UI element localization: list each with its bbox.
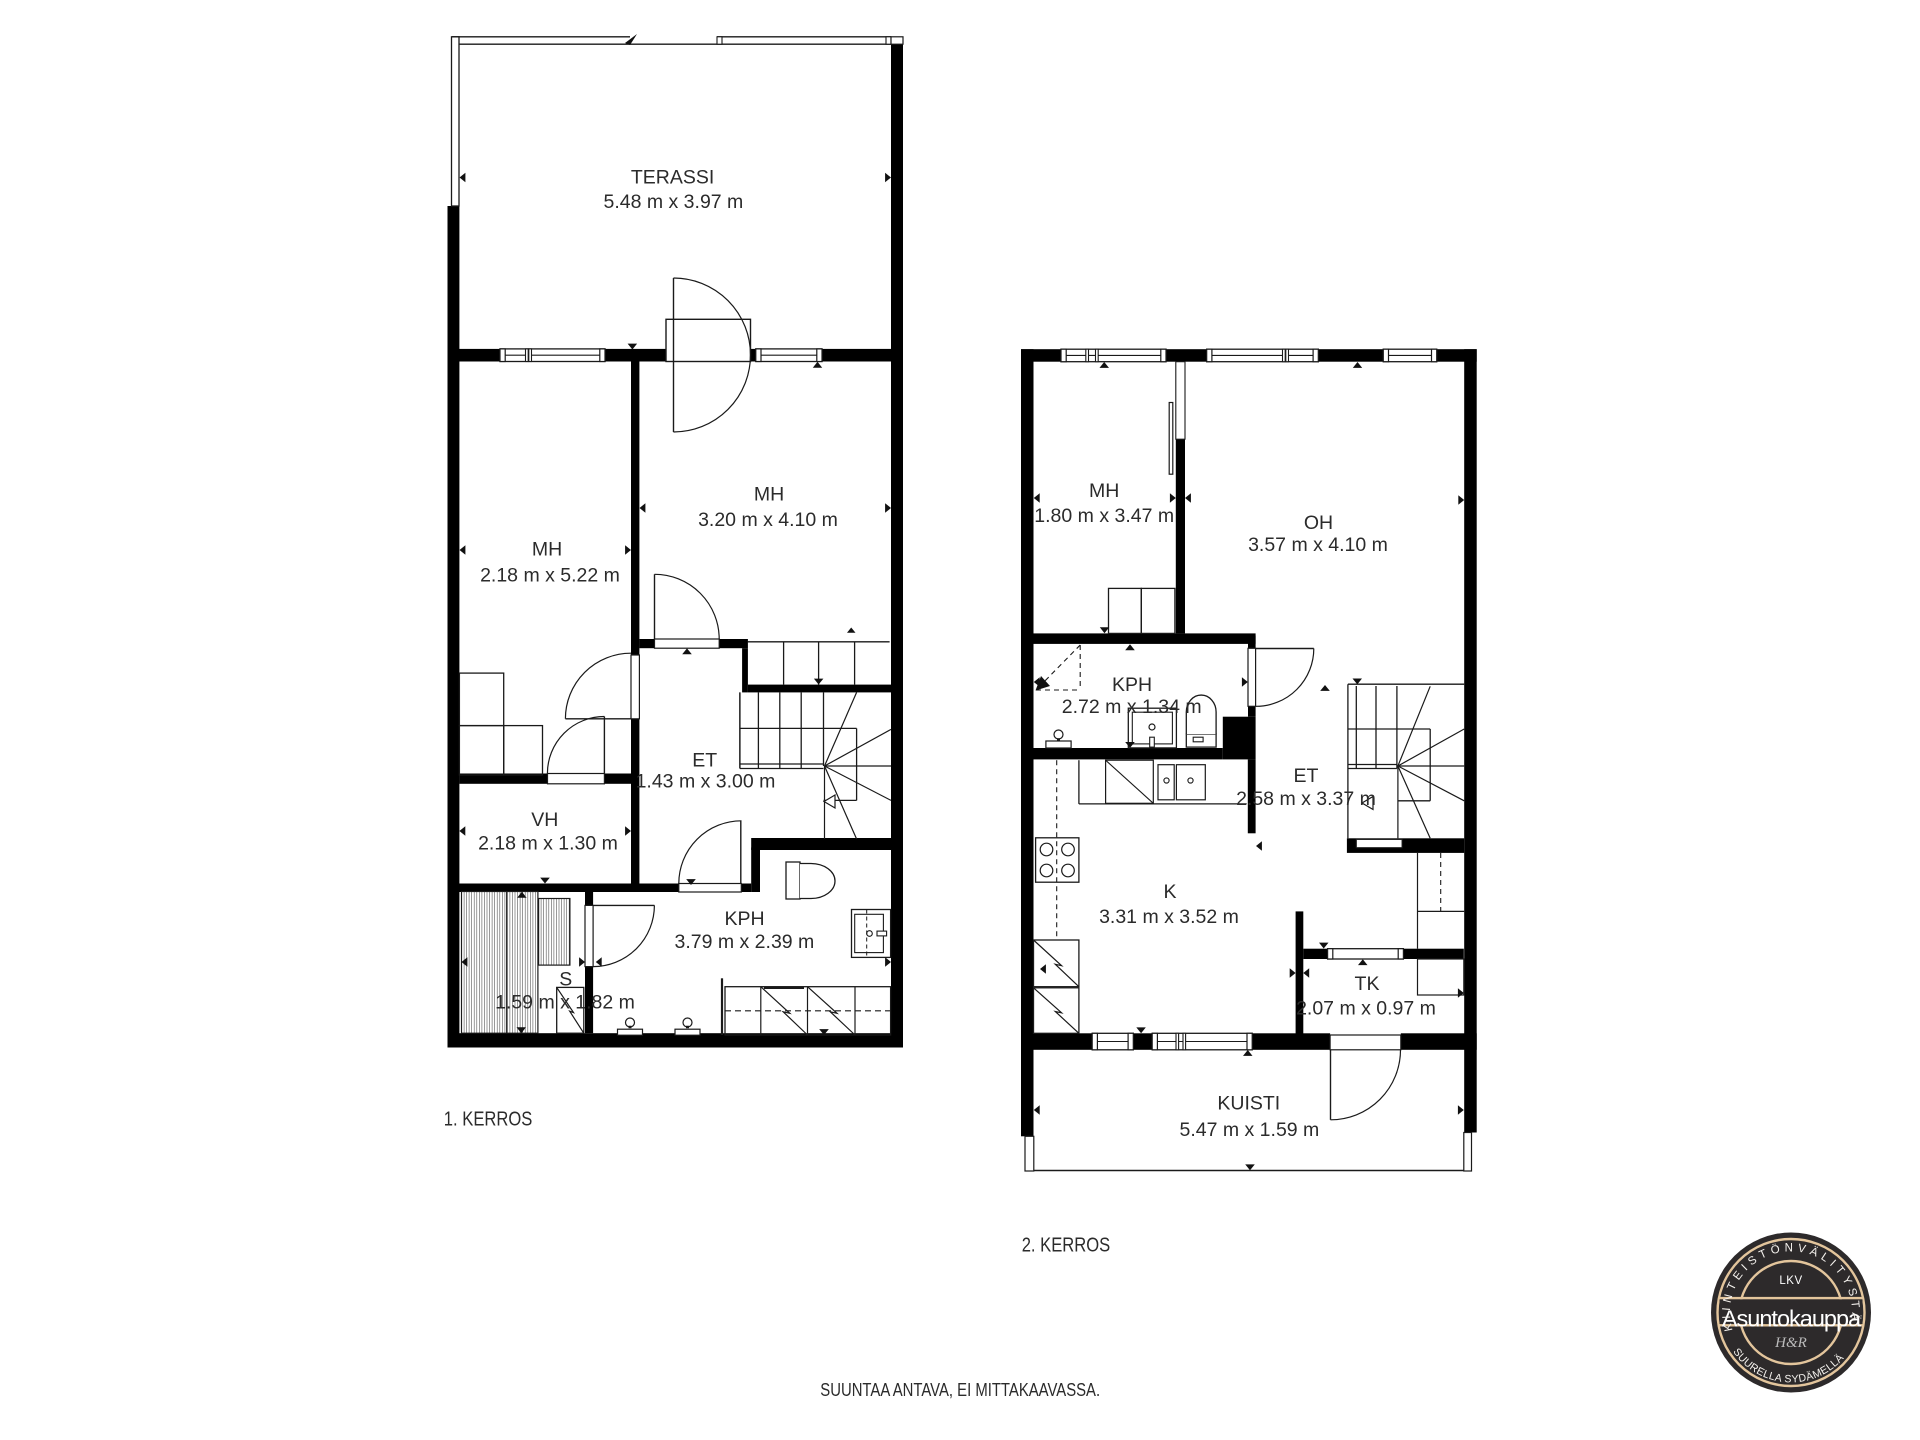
svg-text:2. KERROS: 2. KERROS bbox=[1022, 1233, 1111, 1256]
svg-text:5.48 m x 3.97 m: 5.48 m x 3.97 m bbox=[603, 191, 743, 213]
svg-text:TK: TK bbox=[1355, 973, 1380, 995]
svg-text:MH: MH bbox=[1089, 480, 1119, 502]
svg-text:SUUNTAA ANTAVA, EI MITTAKAAVAS: SUUNTAA ANTAVA, EI MITTAKAAVASSA. bbox=[820, 1379, 1100, 1400]
svg-text:OH: OH bbox=[1304, 512, 1333, 534]
svg-text:MH: MH bbox=[754, 484, 784, 506]
svg-text:ET: ET bbox=[1294, 765, 1319, 787]
svg-text:S: S bbox=[559, 969, 572, 991]
svg-text:H&R: H&R bbox=[1774, 1335, 1807, 1351]
svg-text:KPH: KPH bbox=[724, 908, 764, 930]
svg-text:1. KERROS: 1. KERROS bbox=[444, 1107, 533, 1130]
svg-text:LKV: LKV bbox=[1779, 1275, 1802, 1287]
svg-text:5.47 m x 1.59 m: 5.47 m x 1.59 m bbox=[1179, 1119, 1319, 1141]
svg-text:ET: ET bbox=[692, 750, 717, 772]
svg-text:3.31 m x 3.52 m: 3.31 m x 3.52 m bbox=[1099, 906, 1239, 928]
svg-text:VH: VH bbox=[531, 809, 558, 831]
svg-text:3.20 m x 4.10 m: 3.20 m x 4.10 m bbox=[698, 509, 838, 531]
svg-text:2.18 m x 5.22 m: 2.18 m x 5.22 m bbox=[480, 565, 620, 587]
svg-text:MH: MH bbox=[532, 539, 562, 561]
svg-text:KUISTI: KUISTI bbox=[1217, 1093, 1280, 1115]
svg-text:K: K bbox=[1163, 881, 1176, 903]
svg-text:1.43 m x 3.00 m: 1.43 m x 3.00 m bbox=[636, 771, 776, 793]
svg-text:2.07 m x 0.97 m: 2.07 m x 0.97 m bbox=[1296, 998, 1436, 1020]
svg-text:KPH: KPH bbox=[1112, 674, 1152, 696]
svg-text:1.59 m x 1.82 m: 1.59 m x 1.82 m bbox=[495, 992, 635, 1014]
svg-text:TERASSI: TERASSI bbox=[631, 167, 714, 189]
svg-text:3.79 m x 2.39 m: 3.79 m x 2.39 m bbox=[674, 931, 814, 953]
svg-text:2.72 m x 1.34 m: 2.72 m x 1.34 m bbox=[1062, 696, 1202, 718]
svg-text:1.80 m x 3.47 m: 1.80 m x 3.47 m bbox=[1034, 505, 1174, 527]
svg-text:Asuntokauppa: Asuntokauppa bbox=[1722, 1306, 1862, 1332]
svg-text:2.18 m x 1.30 m: 2.18 m x 1.30 m bbox=[478, 833, 618, 855]
svg-text:2.58 m x 3.37 m: 2.58 m x 3.37 m bbox=[1236, 788, 1376, 810]
svg-text:3.57 m x 4.10 m: 3.57 m x 4.10 m bbox=[1248, 534, 1388, 556]
